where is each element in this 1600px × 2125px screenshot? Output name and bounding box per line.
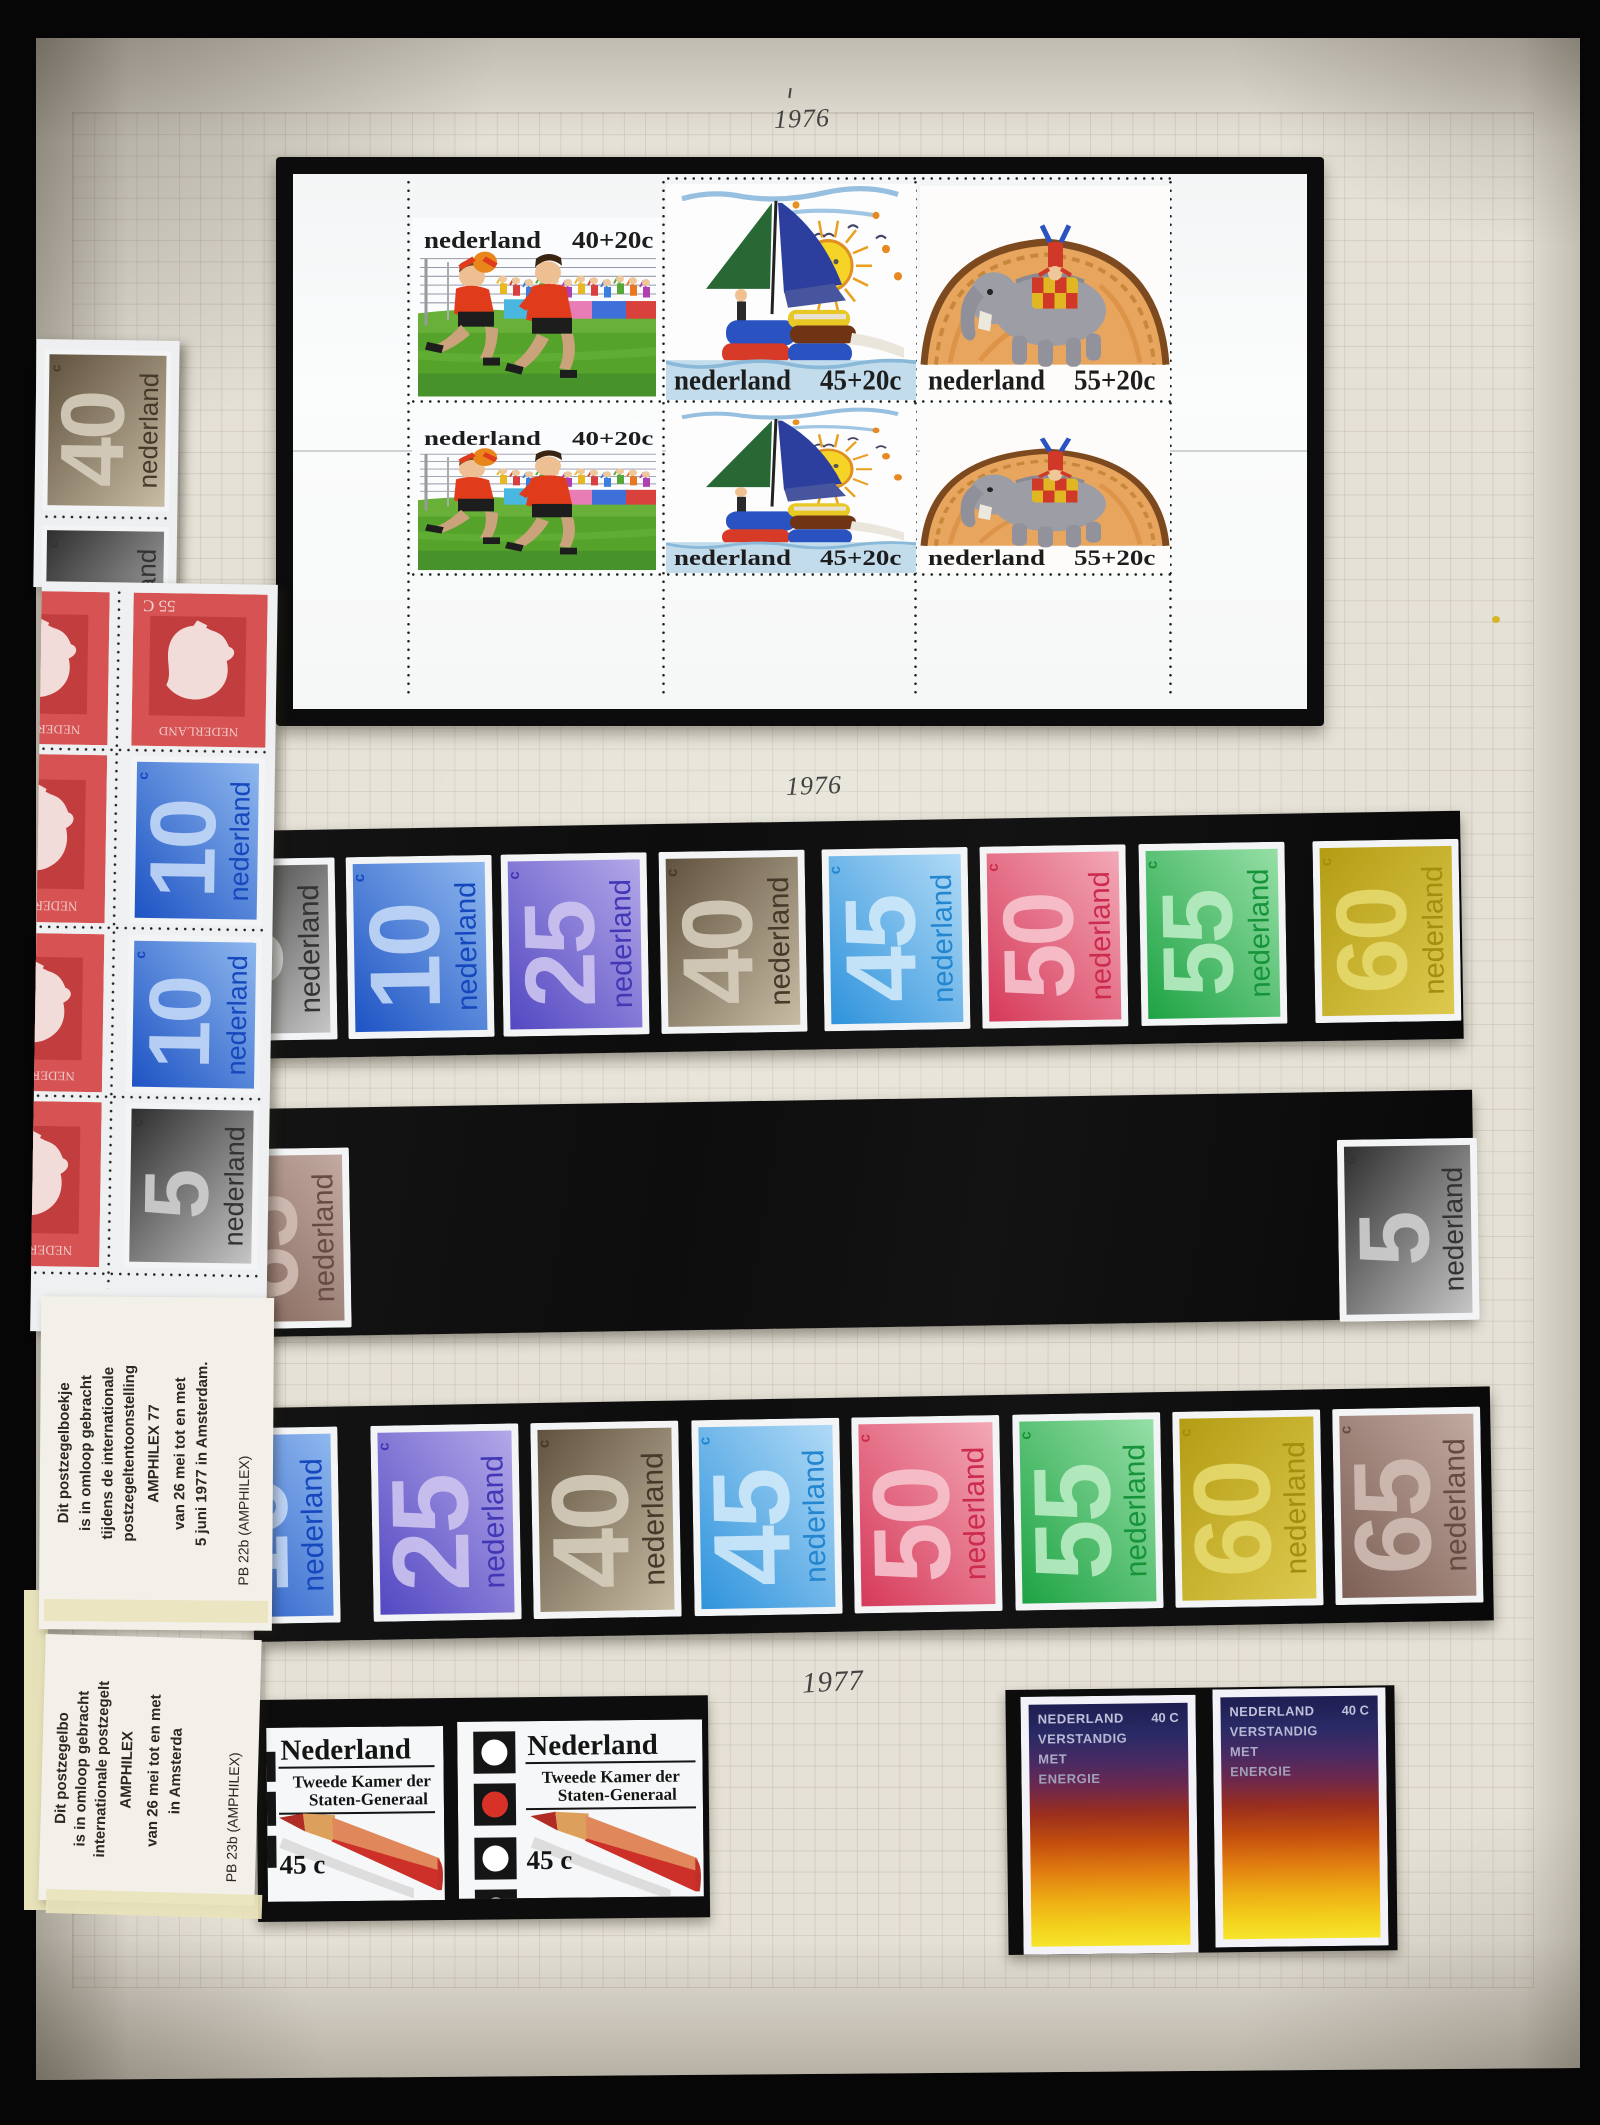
- svg-text:40 C: 40 C: [1151, 1710, 1179, 1725]
- svg-text:Nederland: Nederland: [527, 1729, 658, 1762]
- svg-text:nederland: nederland: [1438, 1438, 1473, 1572]
- svg-text:nederland: nederland: [674, 546, 791, 570]
- svg-text:nederland: nederland: [133, 373, 165, 489]
- svg-text:55: 55: [1012, 1464, 1135, 1582]
- svg-text:40: 40: [530, 1472, 653, 1589]
- svg-text:c: c: [827, 866, 844, 875]
- svg-text:c: c: [1318, 858, 1335, 867]
- svg-text:40: 40: [43, 392, 144, 487]
- svg-text:55+20c: 55+20c: [1074, 364, 1155, 396]
- svg-text:c: c: [857, 1434, 874, 1443]
- svg-text:nederland: nederland: [928, 364, 1045, 396]
- svg-text:60: 60: [1315, 888, 1429, 995]
- svg-text:nederland: nederland: [218, 1126, 250, 1247]
- svg-text:nederland: nederland: [797, 1449, 832, 1583]
- svg-text:45 c: 45 c: [279, 1849, 325, 1879]
- svg-text:c: c: [48, 365, 63, 372]
- svg-text:c: c: [664, 869, 681, 878]
- svg-text:NEDERLAND: NEDERLAND: [159, 724, 239, 739]
- svg-text:45: 45: [691, 1469, 814, 1587]
- svg-text:40+20c: 40+20c: [572, 227, 653, 254]
- svg-text:40: 40: [661, 899, 775, 1006]
- svg-text:10: 10: [131, 977, 229, 1069]
- svg-text:25: 25: [503, 901, 617, 1008]
- svg-text:nederland: nederland: [307, 1173, 341, 1302]
- svg-text:nederland: nederland: [1278, 1441, 1313, 1575]
- svg-text:nederland: nederland: [476, 1455, 511, 1589]
- svg-text:40+20c: 40+20c: [572, 428, 653, 450]
- svg-text:nederland: nederland: [450, 881, 484, 1011]
- svg-text:c: c: [351, 874, 368, 883]
- svg-text:NEDERLAND: NEDERLAND: [1229, 1703, 1314, 1719]
- svg-text:VERSTANDIG: VERSTANDIG: [1038, 1731, 1127, 1747]
- svg-text:NEDERLAND: NEDERLAND: [30, 1242, 72, 1258]
- svg-text:c: c: [376, 1442, 393, 1451]
- svg-text:nederland: nederland: [293, 884, 327, 1014]
- svg-text:Nederland: Nederland: [280, 1733, 411, 1766]
- svg-text:nederland: nederland: [1243, 868, 1277, 998]
- svg-text:55+20c: 55+20c: [1074, 546, 1156, 570]
- svg-text:5: 5: [126, 1169, 228, 1220]
- svg-text:40 C: 40 C: [1342, 1703, 1369, 1718]
- svg-text:25: 25: [370, 1475, 493, 1593]
- svg-text:MET: MET: [1038, 1751, 1067, 1766]
- svg-text:nederland: nederland: [636, 1452, 671, 1586]
- svg-text:55: 55: [1141, 890, 1255, 997]
- svg-text:VERSTANDIG: VERSTANDIG: [1230, 1723, 1318, 1739]
- svg-text:c: c: [132, 951, 148, 959]
- svg-text:45: 45: [824, 895, 938, 1002]
- svg-text:55 C: 55 C: [143, 597, 176, 616]
- svg-text:nederland: nederland: [928, 546, 1045, 570]
- svg-text:nederland: nederland: [424, 227, 541, 254]
- svg-text:nederland: nederland: [957, 1446, 992, 1580]
- svg-text:c: c: [985, 863, 1002, 872]
- svg-text:c: c: [46, 541, 61, 548]
- svg-text:ENERGIE: ENERGIE: [1038, 1771, 1100, 1787]
- svg-text:60: 60: [1172, 1461, 1295, 1578]
- svg-text:Staten-Generaal: Staten-Generaal: [309, 1789, 428, 1809]
- svg-text:c: c: [536, 1440, 553, 1449]
- svg-text:MET: MET: [1230, 1744, 1259, 1759]
- svg-text:nederland: nederland: [224, 781, 256, 902]
- svg-text:nederland: nederland: [221, 955, 253, 1076]
- svg-text:c: c: [1144, 861, 1161, 870]
- svg-text:45 c: 45 c: [526, 1845, 572, 1875]
- svg-text:nederland: nederland: [605, 879, 639, 1009]
- svg-text:NEDERLAND: NEDERLAND: [1038, 1711, 1124, 1727]
- svg-text:NEDERLAND: NEDERLAND: [30, 897, 77, 914]
- svg-text:c: c: [1017, 1431, 1034, 1440]
- svg-text:nederland: nederland: [1417, 865, 1451, 995]
- svg-text:65: 65: [1332, 1458, 1455, 1576]
- svg-text:c: c: [1342, 1156, 1358, 1164]
- svg-text:nederland: nederland: [763, 876, 797, 1006]
- svg-text:Staten-Generaal: Staten-Generaal: [558, 1785, 677, 1805]
- svg-text:nederland: nederland: [295, 1458, 330, 1592]
- svg-text:nederland: nederland: [1437, 1167, 1470, 1292]
- svg-text:50: 50: [982, 893, 1096, 1000]
- svg-text:c: c: [129, 1119, 145, 1127]
- svg-text:5: 5: [1338, 1212, 1451, 1267]
- svg-text:nederland: nederland: [424, 428, 541, 450]
- svg-text:10: 10: [130, 800, 236, 899]
- svg-text:50: 50: [851, 1467, 974, 1584]
- svg-text:45+20c: 45+20c: [820, 364, 901, 396]
- svg-text:c: c: [135, 772, 151, 780]
- svg-text:c: c: [697, 1437, 714, 1446]
- svg-text:nederland: nederland: [674, 364, 792, 396]
- svg-text:10: 10: [348, 904, 462, 1011]
- svg-text:c: c: [506, 871, 523, 880]
- svg-text:c: c: [1177, 1428, 1194, 1437]
- svg-text:nederland: nederland: [926, 874, 960, 1004]
- svg-text:c: c: [1337, 1426, 1354, 1435]
- svg-text:NEDERLAND: NEDERLAND: [30, 1068, 75, 1084]
- svg-text:ENERGIE: ENERGIE: [1230, 1763, 1291, 1779]
- svg-text:nederland: nederland: [1084, 871, 1118, 1001]
- svg-text:45+20c: 45+20c: [820, 546, 901, 570]
- svg-text:nederland: nederland: [1118, 1444, 1153, 1578]
